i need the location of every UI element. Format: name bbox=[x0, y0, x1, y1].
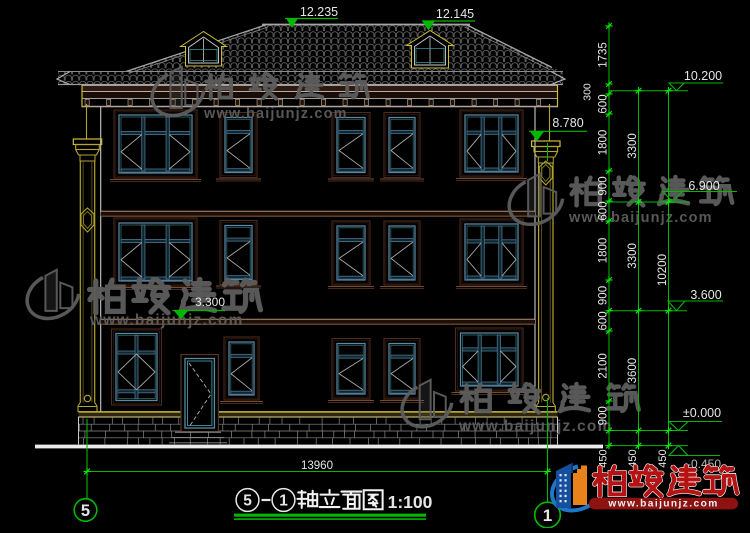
svg-text:www.baijunjz.com: www.baijunjz.com bbox=[89, 312, 244, 329]
svg-text:3300: 3300 bbox=[627, 243, 639, 269]
svg-text:www.baijunjz.com: www.baijunjz.com bbox=[568, 210, 713, 226]
svg-text:3300: 3300 bbox=[627, 133, 639, 159]
svg-text:13960: 13960 bbox=[301, 460, 333, 472]
svg-text:www.baijunjz.com: www.baijunjz.com bbox=[607, 499, 718, 510]
svg-text:6.900: 6.900 bbox=[688, 179, 719, 193]
svg-text:www.baijunjz.com: www.baijunjz.com bbox=[458, 418, 613, 435]
svg-text:3.600: 3.600 bbox=[690, 288, 721, 302]
svg-text:1800: 1800 bbox=[598, 130, 610, 156]
svg-text:900: 900 bbox=[598, 286, 610, 305]
svg-text:600: 600 bbox=[598, 94, 610, 113]
svg-text:1:100: 1:100 bbox=[388, 492, 433, 512]
svg-text:10200: 10200 bbox=[657, 254, 669, 286]
svg-text:1: 1 bbox=[279, 493, 288, 510]
svg-text:5: 5 bbox=[243, 493, 252, 510]
svg-text:±0.000: ±0.000 bbox=[683, 406, 721, 420]
svg-text:900: 900 bbox=[598, 176, 610, 195]
svg-text:3.300: 3.300 bbox=[195, 295, 225, 309]
svg-text:8.780: 8.780 bbox=[552, 116, 583, 130]
svg-text:900: 900 bbox=[598, 406, 610, 425]
svg-text:1735: 1735 bbox=[598, 42, 610, 68]
svg-text:3600: 3600 bbox=[627, 358, 639, 384]
svg-text:12.145: 12.145 bbox=[436, 7, 474, 21]
svg-text:600: 600 bbox=[598, 201, 610, 220]
svg-text:2100: 2100 bbox=[598, 353, 610, 379]
svg-text:12.235: 12.235 bbox=[300, 5, 338, 19]
svg-text:www.baijunjz.com: www.baijunjz.com bbox=[203, 106, 348, 122]
svg-text:1: 1 bbox=[543, 506, 552, 525]
svg-text:1800: 1800 bbox=[598, 238, 610, 264]
svg-text:600: 600 bbox=[598, 311, 610, 330]
svg-text:450: 450 bbox=[657, 449, 669, 467]
svg-text:300: 300 bbox=[582, 83, 594, 101]
svg-text:5: 5 bbox=[81, 502, 90, 520]
svg-text:10.200: 10.200 bbox=[684, 69, 722, 83]
